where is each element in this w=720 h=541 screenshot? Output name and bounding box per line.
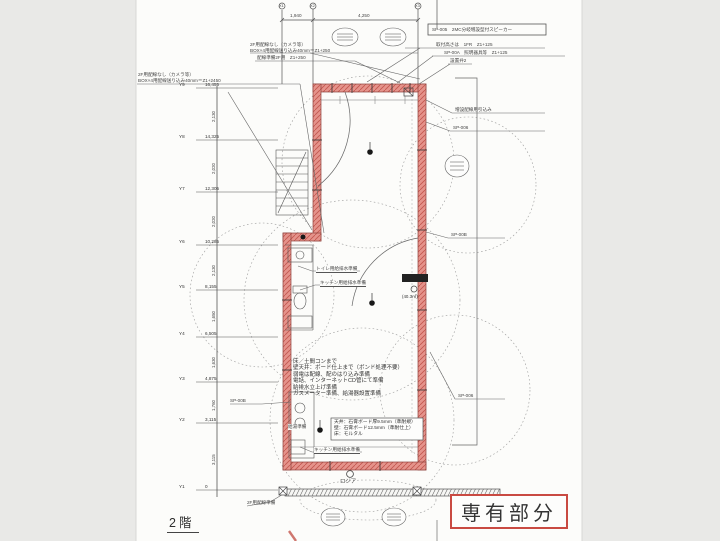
annotation-topright-2: SP-00A 照明器具等 Z1+125 bbox=[444, 50, 507, 56]
label-sp00b-left: SP-00B bbox=[230, 398, 246, 404]
grid-row-Y4: Y46,505 bbox=[179, 331, 279, 336]
grid-row-Y3: Y34,875 bbox=[179, 376, 279, 381]
stamp-label: 専有部分 bbox=[461, 497, 557, 526]
x-grid-label-1: X1 bbox=[279, 3, 284, 8]
grid-row-Y1: Y10 bbox=[179, 484, 279, 489]
annotation-topright-1: 取付高さは 1FR Z1+125 bbox=[436, 42, 493, 48]
label-bottomleft: 2F用配線準備 bbox=[247, 500, 275, 506]
annotation-topleft-1: 2F用配線なし（カメラ等）BOX×4用配線送り込み40mm＝Z1+250 bbox=[250, 42, 330, 53]
label-right-1: 増設配線用引込み bbox=[455, 107, 492, 113]
panel-badge bbox=[402, 274, 428, 282]
label-hot-water: 給湯準備 bbox=[288, 424, 306, 430]
grid-spacing-dim: 1,630 bbox=[211, 357, 216, 368]
x-grid-label-3: X3 bbox=[415, 3, 420, 8]
grid-spacing-dim: 2,020 bbox=[211, 163, 216, 174]
label-toilet-plumbing: トイレ用給排水準備 bbox=[316, 266, 357, 273]
grid-spacing-dim: 2,020 bbox=[211, 216, 216, 227]
label-sp006-upper: SP-006 bbox=[453, 125, 468, 131]
label-sp006-lower: SP-006 bbox=[458, 393, 473, 399]
grid-row-Y2: Y23,115 bbox=[179, 417, 279, 422]
grid-spacing-dim: 2,130 bbox=[211, 111, 216, 122]
exclusive-area-stamp: 専有部分 bbox=[450, 494, 568, 529]
dim-top-right: 4,250 bbox=[358, 13, 370, 19]
grid-spacing-dim: 1,760 bbox=[211, 400, 216, 411]
x-grid-label-2: X2 bbox=[310, 3, 315, 8]
label-sp00b-right: SP-00B bbox=[451, 232, 467, 238]
grid-row-Y5: Y58,155 bbox=[179, 284, 279, 289]
label-kitchen-plumbing-bottom: キッチン用給排水準備 bbox=[314, 447, 360, 454]
annotation-topright-3: 設置弁2 bbox=[450, 58, 466, 64]
scanned-floor-plan: 2F用配線なし（カメラ等）BOX×4用配線送り込み40mm＝Z1+250 配線準… bbox=[0, 0, 720, 541]
floor-label: 2階 bbox=[167, 512, 199, 533]
grid-row-Y8: Y814,325 bbox=[179, 134, 279, 139]
grid-spacing-dim: 3,115 bbox=[211, 454, 216, 465]
grid-row-Y6: Y610,285 bbox=[179, 239, 279, 244]
label-area: (40.3㎡) bbox=[402, 294, 418, 300]
grid-row-Y7: Y712,305 bbox=[179, 186, 279, 191]
grid-spacing-dim: 1,650 bbox=[211, 311, 216, 322]
plan-linework bbox=[0, 0, 720, 541]
dim-top-left: 1,940 bbox=[290, 13, 302, 19]
grid-spacing-dim: 2,130 bbox=[211, 265, 216, 276]
grid-row-Y9: Y916,455 bbox=[179, 82, 279, 87]
annotation-topleft-2: 配線準備2F用 Z1+250 bbox=[257, 55, 306, 61]
label-loggia: ロジア bbox=[340, 479, 356, 485]
label-kitchen-plumbing-mid: キッチン用給排水準備 bbox=[320, 280, 366, 287]
construction-notes: 床／土間コンまで壁天井：ボード仕上まで（ボンド処理不要）弱電は配線、配のはり込み… bbox=[293, 359, 403, 398]
finish-spec-box: 天井：石膏ボード厚9.5mm（準耐規）壁：石膏ボード12.5mm（準耐仕上）床：… bbox=[334, 420, 416, 439]
sp005-label: SP-005 2MC分岐増設型付スピーカー bbox=[432, 27, 512, 33]
